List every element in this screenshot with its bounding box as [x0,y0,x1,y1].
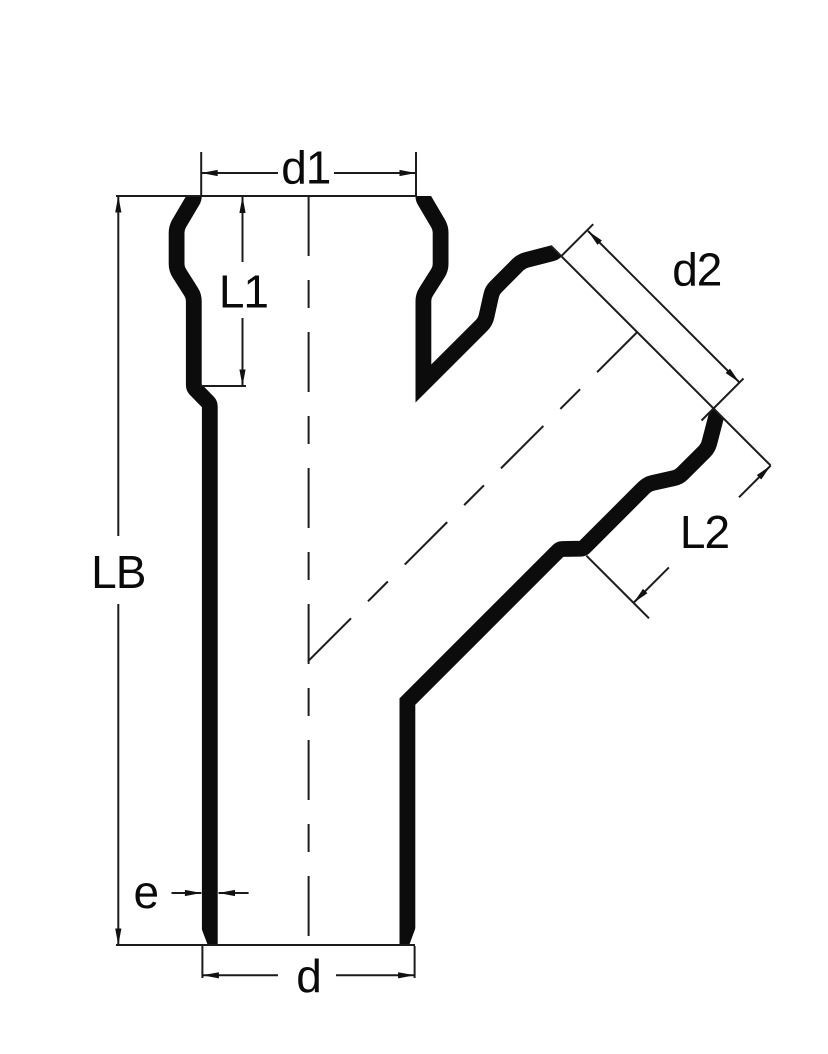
svg-text:e: e [134,866,159,918]
svg-text:d: d [296,950,321,1002]
svg-text:d2: d2 [672,244,721,296]
svg-text:L2: L2 [680,506,729,558]
svg-text:LB: LB [91,546,145,598]
svg-text:d1: d1 [281,142,330,194]
svg-text:L1: L1 [219,266,268,318]
